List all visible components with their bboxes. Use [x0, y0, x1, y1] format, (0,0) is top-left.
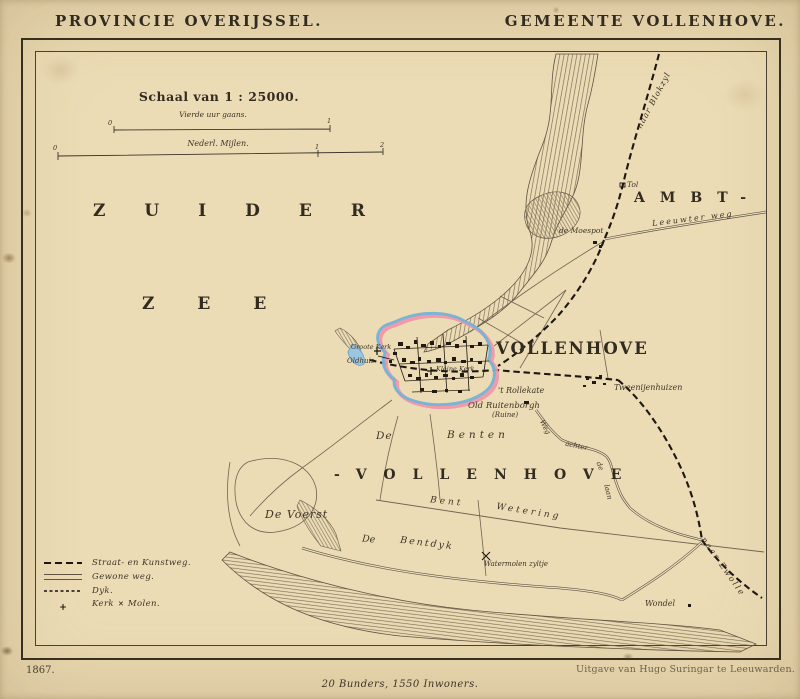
region-ambt: AMBT- [634, 191, 761, 205]
town-name-vollenhove: VOLLENHOVE [496, 341, 649, 358]
legend-dashed-road-sample [44, 562, 82, 565]
poi-ruine: (Ruine) [492, 412, 518, 419]
dike-de: De [362, 534, 376, 545]
region-de-voerst: De Voerst [265, 509, 328, 520]
windmill-icon: ✕ [118, 600, 124, 608]
legend-label: Dyk. [92, 586, 113, 596]
legend-label: Straat- en Kunstweg. [92, 558, 191, 568]
municipality-stats: 20 Bunders, 1550 Inwoners. [0, 680, 800, 690]
publisher-credit: Uitgave van Hugo Suringar te Leeuwarden. [576, 665, 795, 675]
legend-double-line-sample [44, 574, 82, 579]
legend-symbols: + [44, 595, 82, 614]
church-cross-icon: + [59, 603, 67, 613]
map-year: 1867. [26, 666, 55, 676]
scale-bar1-tick0: 0 [108, 120, 112, 127]
poi-tweenijenhuizen: Tweenijenhuizen [614, 384, 682, 392]
legend-label-kerk: Kerk [92, 599, 114, 609]
scale-bar2-tick1: 1 [315, 144, 319, 151]
map-sheet: PROVINCIE OVERIJSSEL. GEMEENTE VOLLENHOV… [0, 0, 800, 699]
poi-oldhuis: Oldhuis [347, 358, 374, 365]
legend-label: Gewone weg. [92, 572, 154, 582]
scale-bar1-label: Vierde uur gaans. [163, 111, 263, 119]
province-title: PROVINCIE OVERIJSSEL. [55, 14, 323, 29]
scale-heading: Schaal van 1 : 25000. [119, 91, 319, 104]
legend-row-gewone-weg: Gewone weg. [44, 572, 154, 582]
poi-wondel: Wondel [645, 600, 675, 608]
region-de-benten-de: De [376, 431, 393, 442]
poi-groote-kerk: Groote Kerk [351, 344, 391, 351]
map-linework [0, 0, 800, 699]
legend-row-kerk-molen: + Kerk ✕ Molen. [44, 599, 160, 609]
legend-dike-sample [44, 590, 82, 591]
scale-bar1-tick1: 1 [327, 118, 331, 125]
scale-bar2-tick2: 2 [380, 142, 384, 149]
church-cross-icon [427, 367, 435, 375]
region-ambt-vollenhove: -VOLLENHOVE [334, 468, 638, 482]
scale-bar2-tick0: 0 [53, 145, 57, 152]
legend-label-molen: Molen. [128, 599, 160, 609]
municipality-title: GEMEENTE VOLLENHOVE. [505, 14, 786, 29]
region-de-benten: Benten [447, 430, 509, 441]
legend-row-straatweg: Straat- en Kunstweg. [44, 558, 191, 568]
poi-kleine-kerk: Kleine Kerk [436, 366, 475, 373]
poi-rollekate: 't Rollekate [498, 387, 544, 395]
scale-bar2-label: Nederl. Mijlen. [168, 140, 268, 148]
windmill-icon [482, 552, 490, 560]
poi-de-moespot: de Moespot [559, 227, 603, 235]
sea-name-zuider: ZUIDER [93, 203, 404, 220]
poi-tol: Tol [627, 181, 638, 189]
poi-watermolen-zyltje: Watermolen zyltje [484, 561, 548, 568]
sea-name-zee: ZEE [142, 296, 309, 313]
poi-old-ruitenborgh: Old Ruitenborgh [468, 402, 540, 411]
